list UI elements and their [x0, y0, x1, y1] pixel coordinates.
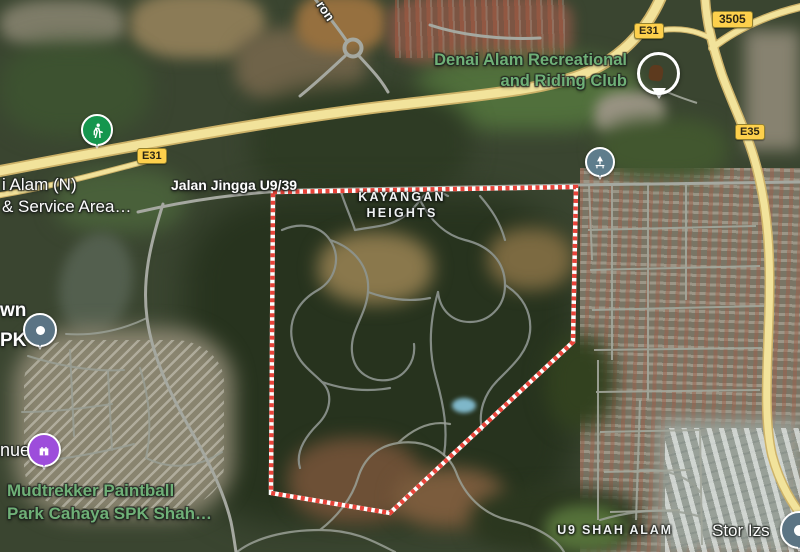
attraction-marker[interactable] — [27, 433, 61, 467]
place-marker-upper[interactable] — [23, 313, 57, 347]
map-canvas[interactable]: ron Denai Alam Recreational and Riding C… — [0, 0, 800, 552]
road-label-jalan-jingga: Jalan Jingga U9/39 — [171, 177, 297, 193]
route-shield-e31-left: E31 — [137, 148, 167, 164]
horse-photo-shape — [648, 64, 664, 82]
area-label-u9-shah-alam: U9 SHAH ALAM — [540, 523, 690, 537]
route-shield-e31-upper: E31 — [634, 23, 664, 39]
dot-icon — [794, 525, 800, 536]
hiker-icon — [89, 122, 106, 139]
area-label-kayangan-heights: KAYANGAN HEIGHTS — [341, 189, 463, 221]
pin-pointer-fill — [36, 339, 44, 347]
boundary-layer — [0, 0, 800, 552]
poi-label-service-area[interactable]: i Alam (N) & Service Area… — [2, 174, 131, 218]
castle-icon — [36, 442, 52, 458]
poi-label-stor[interactable]: Stor Izs — [712, 521, 770, 541]
trailhead-marker[interactable] — [81, 114, 113, 146]
tree-bench-icon — [592, 154, 608, 170]
poi-label-venue-partial[interactable]: nue — [0, 440, 30, 461]
poi-label-riding-club[interactable]: Denai Alam Recreational and Riding Club — [420, 50, 627, 92]
dot-icon — [36, 326, 45, 335]
route-shield-e35: E35 — [735, 124, 765, 140]
pin-pointer-fill — [596, 169, 604, 177]
pin-pointer-fill — [795, 541, 800, 549]
place-marker-stor[interactable] — [780, 511, 800, 549]
riding-club-photo — [637, 52, 680, 95]
park-marker[interactable] — [585, 147, 615, 177]
pin-pointer-fill — [93, 138, 101, 146]
route-shield-3505: 3505 — [712, 11, 753, 28]
poi-label-mudtrekker[interactable]: Mudtrekker Paintball Park Cahaya SPK Sha… — [7, 479, 212, 525]
selection-boundary-casing — [271, 187, 576, 513]
selection-boundary — [271, 187, 576, 513]
riding-club-photo-marker[interactable] — [637, 52, 680, 95]
pin-pointer-fill — [40, 459, 48, 467]
